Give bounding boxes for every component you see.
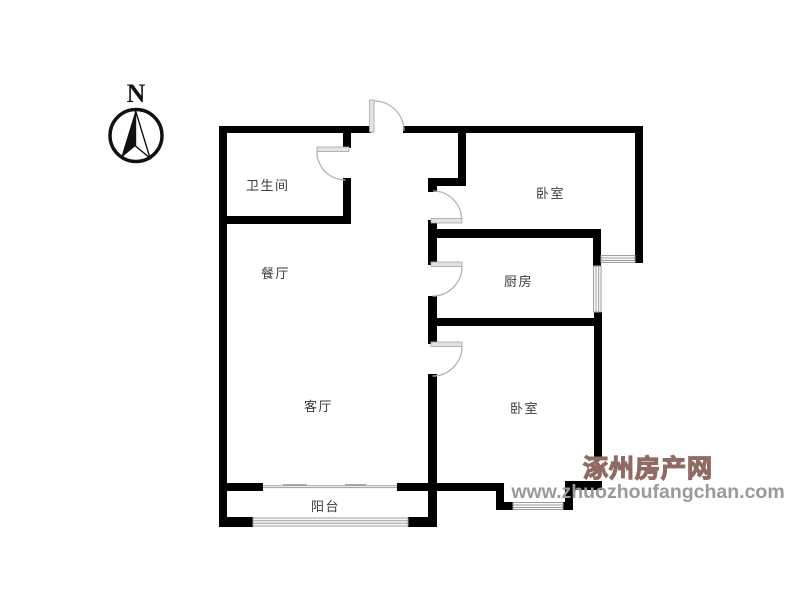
room-label-kitchen: 厨房 [504,271,533,290]
room-label-balcony: 阳台 [311,496,340,515]
compass-north-icon: N [110,79,162,162]
room-label-living-room: 客厅 [304,396,333,415]
floorplan-page: N 涿州房产网 www.zhuozhoufangchan.com 卫生间 餐厅 … [0,0,800,600]
watermark: 涿州房产网 www.zhuozhoufangchan.com [510,454,784,503]
watermark-site-name: 涿州房产网 [583,454,713,483]
door-bathroom [317,147,349,180]
door-bedroom-south [431,342,462,376]
room-label-dining-room: 餐厅 [261,263,290,282]
window-living-balcony-divider [263,485,397,488]
compass-north-label: N [127,79,146,108]
door-entrance [370,100,405,132]
window-bedroom-south [513,503,563,510]
watermark-site-url: www.zhuozhoufangchan.com [510,481,784,503]
window-balcony [253,518,408,526]
door-kitchen [431,262,462,296]
door-bedroom-north [431,191,462,223]
room-label-bathroom: 卫生间 [246,175,290,194]
window-northeast-notch [601,256,635,263]
room-label-bedroom-north: 卧室 [536,183,565,202]
window-kitchen [594,266,602,312]
room-label-bedroom-south: 卧室 [510,398,539,417]
floor-plan-drawing: N 涿州房产网 www.zhuozhoufangchan.com [0,0,800,600]
